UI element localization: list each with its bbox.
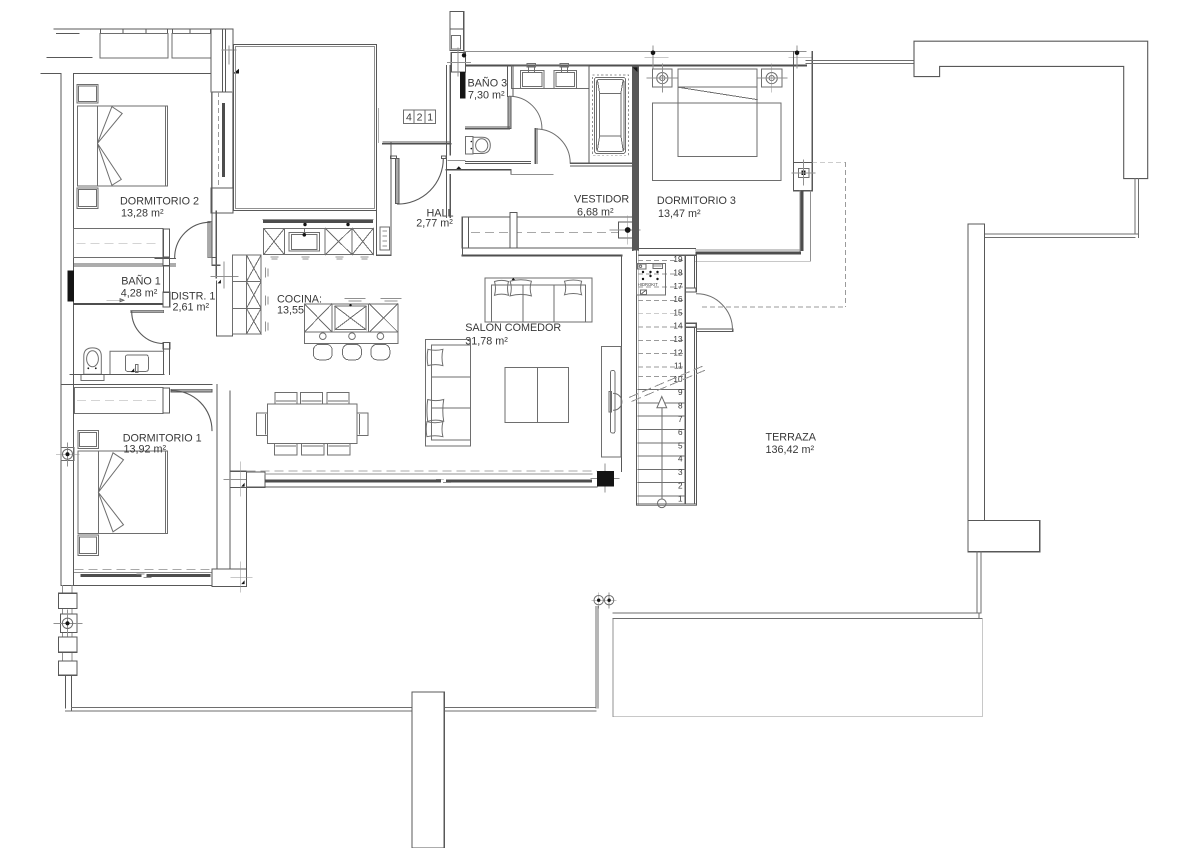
svg-text:13,55: 13,55 (277, 305, 304, 317)
svg-text:136,42 m²: 136,42 m² (766, 444, 815, 456)
svg-text:VESTIDOR: VESTIDOR (574, 194, 629, 206)
svg-text:6,68 m²: 6,68 m² (577, 207, 614, 219)
svg-text:14: 14 (673, 322, 683, 331)
svg-text:5: 5 (678, 441, 683, 450)
svg-text:15: 15 (673, 308, 683, 317)
svg-text:19: 19 (673, 255, 683, 264)
svg-text:16: 16 (673, 295, 683, 304)
svg-text:1: 1 (678, 495, 683, 504)
svg-text:DORMITORIO 2: DORMITORIO 2 (120, 196, 199, 208)
svg-text:TERRAZA: TERRAZA (766, 432, 817, 444)
svg-text:7: 7 (678, 415, 683, 424)
svg-text:DORMITORIO 3: DORMITORIO 3 (657, 195, 736, 207)
svg-text:17: 17 (673, 282, 683, 291)
svg-text:18: 18 (673, 269, 683, 278)
svg-text:13: 13 (673, 335, 683, 344)
svg-text:4,28 m²: 4,28 m² (121, 288, 158, 300)
svg-text:1: 1 (427, 111, 433, 123)
svg-text:2: 2 (678, 481, 683, 490)
svg-text:SALON COMEDOR: SALON COMEDOR (465, 322, 561, 334)
svg-text:3: 3 (678, 468, 683, 477)
svg-text:4: 4 (678, 455, 683, 464)
svg-text:2,61 m²: 2,61 m² (173, 302, 210, 314)
svg-text:11: 11 (674, 362, 683, 371)
svg-text:13,28 m²: 13,28 m² (121, 208, 164, 220)
svg-text:4: 4 (406, 111, 412, 123)
svg-text:31,78 m²: 31,78 m² (465, 336, 508, 348)
svg-text:BAÑO 1: BAÑO 1 (121, 275, 161, 288)
svg-text:9: 9 (678, 388, 683, 397)
svg-text:13,92 m²: 13,92 m² (124, 444, 167, 456)
svg-text:HIDROKIT: HIDROKIT (638, 282, 658, 287)
svg-text:6: 6 (678, 428, 683, 437)
svg-text:2,77 m²: 2,77 m² (416, 218, 453, 230)
svg-text:13,47 m²: 13,47 m² (658, 208, 701, 220)
svg-text:BAÑO 3: BAÑO 3 (468, 77, 508, 90)
svg-text:2: 2 (417, 111, 423, 123)
svg-text:8: 8 (678, 402, 683, 411)
svg-text:7,30 m²: 7,30 m² (468, 90, 505, 102)
svg-text:12: 12 (673, 348, 683, 357)
